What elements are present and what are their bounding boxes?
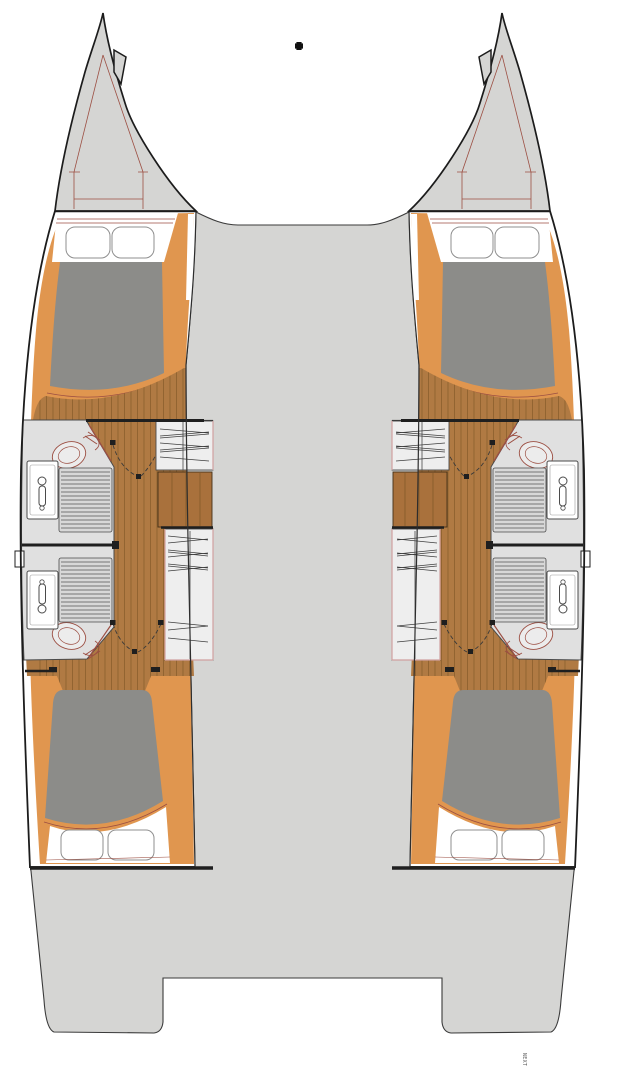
watermark-text: NEXT [521, 1053, 527, 1066]
pillow [108, 830, 154, 860]
door-post [112, 541, 119, 549]
pillow [66, 227, 110, 258]
hinge-post [110, 620, 116, 625]
mattress [50, 262, 164, 390]
forward-berth [47, 213, 178, 397]
sink-icon [27, 461, 58, 519]
bulkhead-post [151, 667, 160, 672]
shower-grate [59, 558, 112, 622]
sink-icon [27, 571, 58, 629]
deck-plan-canvas: NEXT [0, 0, 617, 1080]
pillow [112, 227, 154, 258]
port-hull [15, 13, 213, 868]
door-meet-post [136, 474, 141, 479]
bow [55, 13, 196, 211]
companionway-steps [158, 472, 212, 527]
door-meet-post [132, 649, 137, 654]
porthole [15, 551, 24, 567]
bow-deck [55, 13, 196, 211]
starboard-hull [392, 13, 590, 868]
registration-marker [294, 41, 304, 51]
aft-berth [44, 690, 170, 863]
hanging-locker-aft [161, 528, 213, 661]
pillow [61, 830, 103, 860]
mattress [45, 690, 163, 825]
shower-grate [59, 468, 112, 532]
hinge-post [110, 440, 116, 445]
hinge-post [158, 620, 164, 625]
boat-floor-plan: NEXT [0, 0, 617, 1080]
bulkhead-post [49, 667, 57, 672]
